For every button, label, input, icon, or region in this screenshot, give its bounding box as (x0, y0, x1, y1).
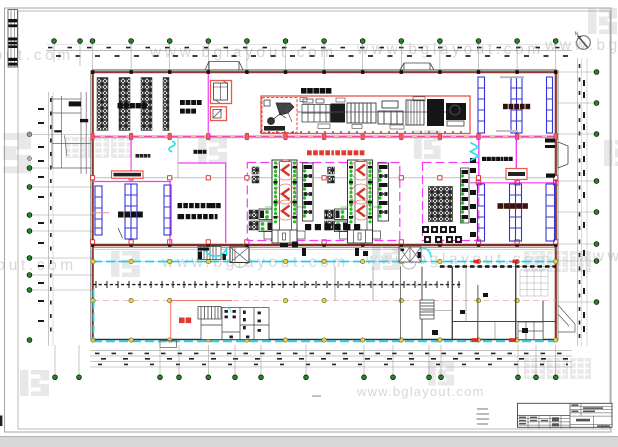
svg-text:www.bglayout.com: www.bglayout.com (161, 254, 349, 271)
svg-text:www.bglayout.com: www.bglayout.com (356, 384, 485, 399)
svg-text:www.bglayout.com: www.bglayout.com (149, 44, 337, 61)
svg-text:N: N (575, 32, 579, 38)
